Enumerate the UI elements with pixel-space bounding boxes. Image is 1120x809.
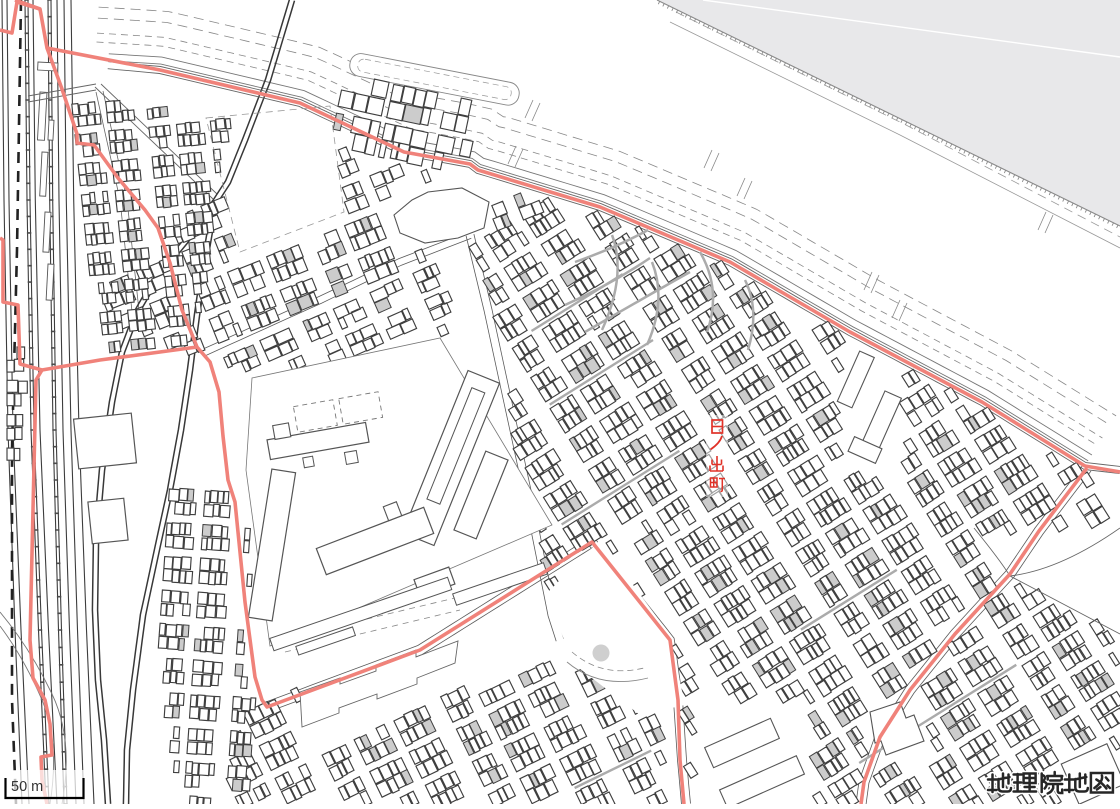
svg-text:50 m: 50 m xyxy=(11,779,43,795)
